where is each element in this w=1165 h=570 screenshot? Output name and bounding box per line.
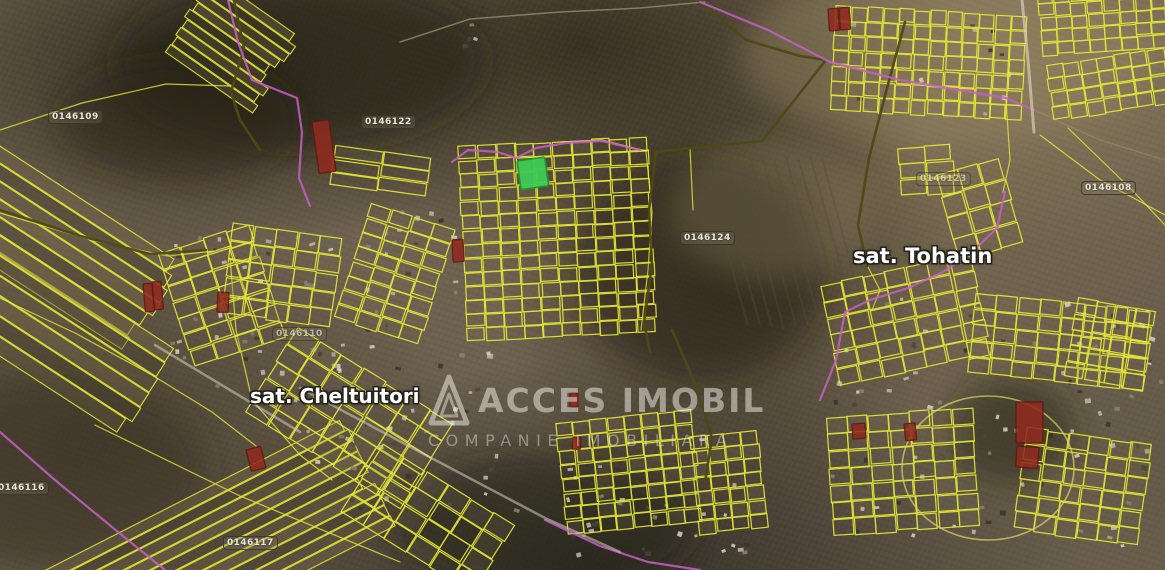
- red-parcel: [852, 423, 866, 439]
- red-parcel: [1016, 402, 1043, 443]
- selected-parcel-highlight[interactable]: [517, 157, 549, 190]
- red-parcel: [572, 437, 581, 450]
- red-parcel: [152, 281, 163, 310]
- map-viewport[interactable]: 0146109014612201461240146123014610801461…: [0, 0, 1165, 570]
- cadastral-parcel-overlay: [0, 0, 1165, 570]
- red-parcel: [570, 393, 578, 407]
- red-parcel: [452, 239, 464, 262]
- red-parcel: [904, 423, 917, 441]
- red-parcel: [839, 7, 851, 30]
- red-parcel: [1016, 446, 1039, 468]
- red-parcel: [828, 8, 840, 31]
- red-parcel: [217, 292, 229, 313]
